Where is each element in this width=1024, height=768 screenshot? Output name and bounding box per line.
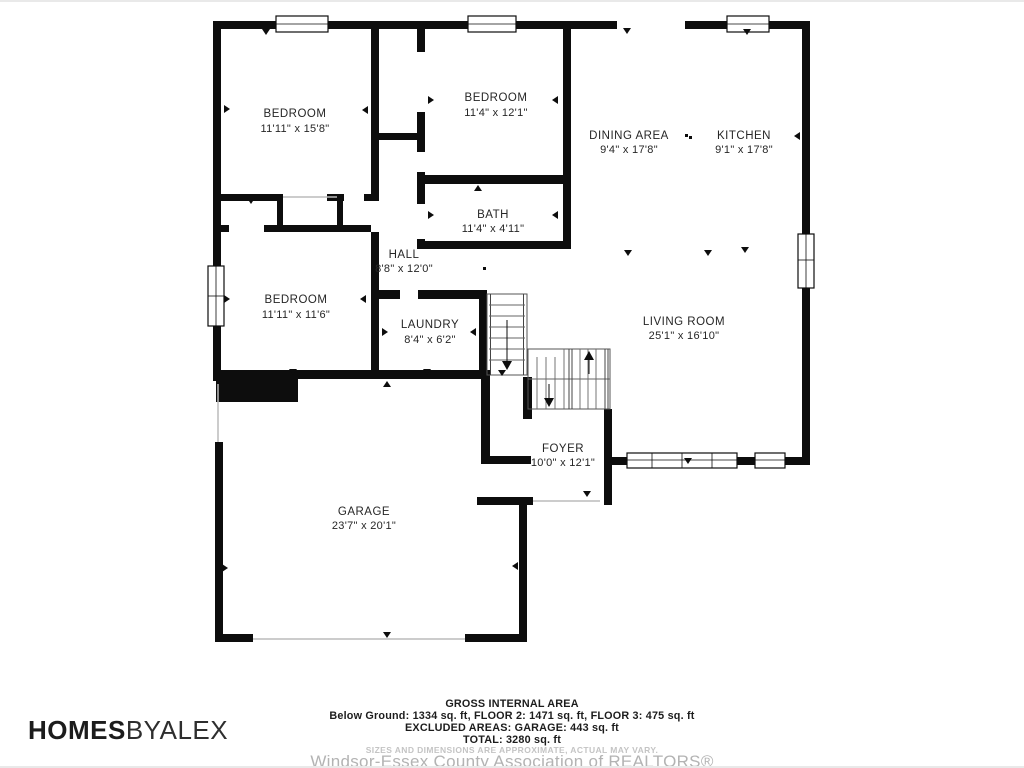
room-label-bedroom2: BEDROOM 11'4" x 12'1": [464, 92, 527, 119]
bedroom3-dims: 11'11" x 11'6": [262, 309, 330, 321]
bedroom3-name: BEDROOM: [265, 294, 328, 306]
kitchen-name: KITCHEN: [717, 130, 771, 142]
room-label-garage: GARAGE 23'7" x 20'1": [332, 506, 396, 532]
hall-name: HALL: [389, 249, 420, 261]
floor-areas-line: Below Ground: 1334 sq. ft, FLOOR 2: 1471…: [0, 710, 1024, 722]
room-label-bath: BATH 11'4" x 4'11": [462, 209, 525, 235]
stairs-switchback: [528, 349, 610, 409]
room-label-living: LIVING ROOM 25'1" x 16'10": [643, 316, 725, 342]
bedroom2-name: BEDROOM: [465, 92, 528, 104]
stairs-down-arrow-2: [544, 398, 554, 407]
room-label-bedroom1: BEDROOM 11'11" x 15'8": [260, 108, 329, 135]
room-label-laundry: LAUNDRY 8'4" x 6'2": [401, 319, 459, 346]
room-label-hall: HALL 8'8" x 12'0": [375, 249, 433, 275]
dining-name: DINING AREA: [589, 130, 669, 142]
garage-name: GARAGE: [338, 506, 390, 518]
bath-name: BATH: [477, 209, 509, 221]
foyer-name: FOYER: [542, 443, 584, 455]
living-dims: 25'1" x 16'10": [649, 330, 720, 342]
gross-internal-area-title: GROSS INTERNAL AREA: [0, 698, 1024, 710]
bedroom1-dims: 11'11" x 15'8": [260, 123, 329, 135]
floorplan-drawing: BEDROOM 11'11" x 15'8" BEDROOM 11'4" x 1…: [0, 2, 1024, 768]
laundry-dims: 8'4" x 6'2": [404, 334, 455, 346]
excluded-areas-line: EXCLUDED AREAS: GARAGE: 443 sq. ft: [0, 722, 1024, 734]
room-label-dining: DINING AREA 9'4" x 17'8": [589, 130, 669, 156]
window-living-right: [798, 234, 814, 288]
laundry-name: LAUNDRY: [401, 319, 459, 331]
hall-dims: 8'8" x 12'0": [375, 263, 433, 275]
stairs-basement-flight: [487, 294, 527, 375]
window-bedroom3-left: [208, 266, 224, 326]
dining-dims: 9'4" x 17'8": [600, 144, 658, 156]
room-label-foyer: FOYER 10'0" x 12'1": [531, 443, 595, 469]
stairs-up-arrow: [584, 351, 594, 360]
window-bedroom1-top: [276, 16, 328, 32]
bedroom1-name: BEDROOM: [264, 108, 327, 120]
foyer-dims: 10'0" x 12'1": [531, 457, 595, 469]
living-name: LIVING ROOM: [643, 316, 725, 328]
bedroom2-dims: 11'4" x 12'1": [464, 107, 527, 119]
window-living-south: [627, 453, 785, 468]
window-bedroom2-top: [468, 16, 516, 32]
garage-dims: 23'7" x 20'1": [332, 520, 396, 532]
kitchen-dims: 9'1" x 17'8": [715, 144, 773, 156]
room-label-kitchen: KITCHEN 9'1" x 17'8": [715, 130, 773, 156]
stairs-down-arrow: [502, 361, 512, 370]
realtors-watermark: Windsor-Essex County Association of REAL…: [0, 752, 1024, 768]
bath-dims: 11'4" x 4'11": [462, 223, 525, 235]
floorplan-page: BEDROOM 11'11" x 15'8" BEDROOM 11'4" x 1…: [0, 0, 1024, 768]
room-label-bedroom3: BEDROOM 11'11" x 11'6": [262, 294, 330, 321]
